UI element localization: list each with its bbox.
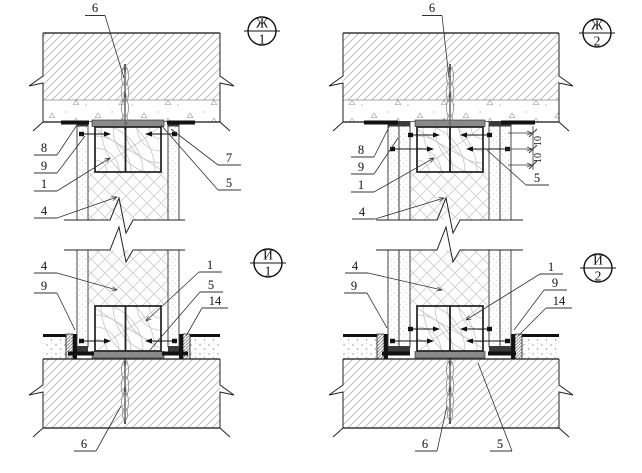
detail-panel-zh1: 6 8 9 1 4 7 5 (29, 1, 280, 233)
callout-8: 8 (34, 125, 77, 155)
svg-text:И: И (593, 253, 603, 268)
svg-text:7: 7 (226, 151, 232, 165)
angle-strip-left (68, 352, 94, 356)
svg-text:6: 6 (422, 437, 428, 451)
angle-strip-right (167, 121, 195, 125)
floor-slab (329, 359, 573, 437)
detail-panel-i1: 4 9 1 5 14 6 И (29, 227, 286, 451)
technical-drawing: 6 8 9 1 4 7 5 (0, 0, 642, 473)
svg-text:9: 9 (552, 276, 558, 290)
svg-text:4: 4 (41, 259, 48, 273)
damper-strip (415, 352, 485, 359)
flooring-left (43, 334, 66, 337)
break-line-right (220, 33, 234, 131)
svg-text:9: 9 (351, 279, 357, 293)
svg-text:6: 6 (92, 1, 98, 15)
svg-text:1: 1 (207, 258, 213, 272)
svg-text:5: 5 (497, 437, 503, 451)
damper-strip (92, 120, 164, 127)
callout-9-left: 9 (344, 279, 387, 328)
insulation-core (410, 250, 489, 306)
svg-text:5: 5 (208, 278, 214, 292)
svg-text:1: 1 (41, 177, 47, 191)
drawing-canvas: 6 8 9 1 4 7 5 (0, 0, 642, 473)
detail-panel-zh2: 10 10 6 8 9 1 4 (329, 1, 615, 233)
svg-text:9: 9 (358, 160, 364, 174)
svg-text:6: 6 (81, 437, 87, 451)
flooring-left (343, 334, 377, 337)
angle-strip-right (501, 121, 535, 125)
callout-8: 8 (351, 125, 390, 157)
svg-text:14: 14 (553, 294, 566, 308)
svg-text:14: 14 (209, 294, 222, 308)
dim-10-upper: 10 (533, 136, 544, 146)
callout-14: 14 (186, 294, 228, 336)
svg-text:9: 9 (41, 159, 47, 173)
section-marker-i1: И 1 (250, 248, 286, 279)
insulation-core (88, 172, 168, 220)
insulation-core (410, 172, 489, 220)
svg-text:8: 8 (41, 141, 47, 155)
gypsum-board-right (168, 122, 179, 220)
svg-text:5: 5 (226, 176, 232, 190)
svg-text:8: 8 (358, 143, 364, 157)
floor-slab (29, 359, 234, 437)
angle-strip-right (162, 352, 188, 356)
svg-text:1: 1 (358, 178, 364, 192)
flooring-right (522, 334, 559, 337)
svg-text:4: 4 (41, 204, 48, 218)
section-marker-zh1: Ж 1 (244, 16, 280, 47)
flooring-right (190, 334, 220, 337)
section-marker-zh2: Ж 2 (579, 18, 615, 49)
break-line-left (29, 33, 43, 131)
svg-text:4: 4 (359, 205, 366, 219)
svg-text:И: И (263, 248, 273, 263)
svg-text:1: 1 (259, 32, 266, 47)
angle-strip-right (488, 352, 516, 356)
callout-14: 14 (518, 294, 572, 336)
svg-text:5: 5 (534, 171, 540, 185)
svg-text:9: 9 (41, 279, 47, 293)
gypsum-board-left (77, 122, 88, 220)
svg-text:4: 4 (352, 259, 359, 273)
edge-strip-right (515, 334, 522, 359)
svg-text:Ж: Ж (256, 16, 269, 31)
svg-text:2: 2 (595, 269, 602, 284)
svg-text:1: 1 (265, 264, 272, 279)
callout-7: 7 (171, 129, 241, 165)
detail-panel-i2: 4 9 1 9 14 6 5 (329, 227, 616, 451)
dim-10-lower: 10 (533, 153, 544, 163)
angle-strip-left (61, 121, 89, 125)
angle-strip-left (364, 121, 398, 125)
angle-strip-left (382, 352, 410, 356)
svg-text:2: 2 (594, 34, 601, 49)
damper-strip (92, 352, 164, 359)
svg-text:1: 1 (548, 260, 554, 274)
svg-text:6: 6 (429, 1, 435, 15)
ceiling-slab (29, 33, 234, 131)
section-marker-i2: И 2 (580, 253, 616, 284)
svg-text:Ж: Ж (591, 18, 604, 33)
callout-9: 9 (34, 279, 75, 330)
